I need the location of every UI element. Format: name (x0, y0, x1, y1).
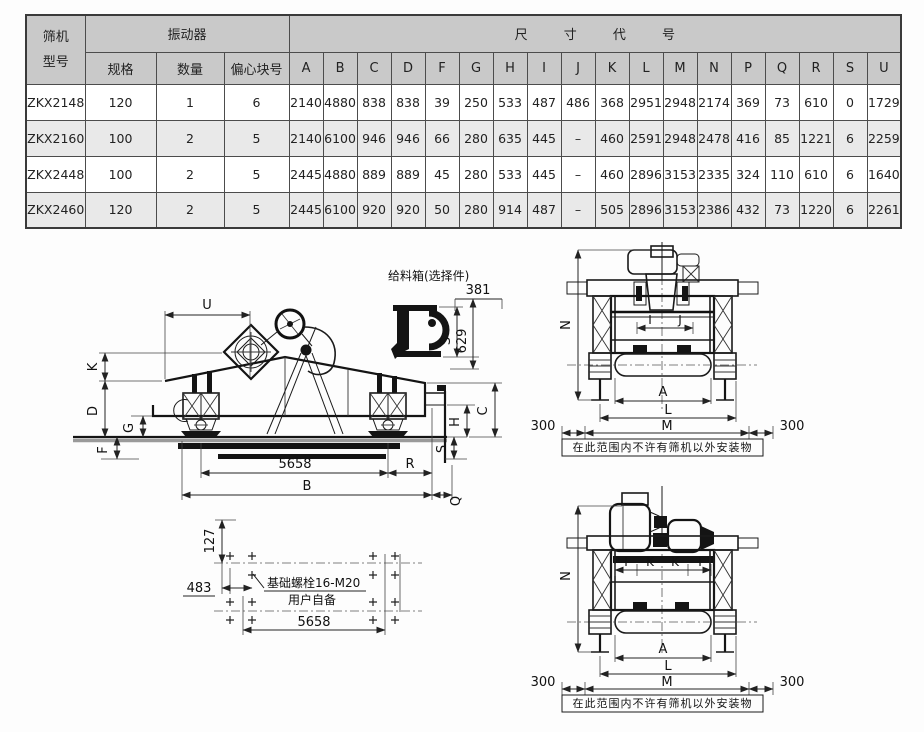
cell-dim: 2445 (289, 156, 323, 192)
cell-dim: 4880 (323, 156, 357, 192)
front-view-bottom-drawing: I K K I N A L 300 M 300 在此范围内不许有筛机以外安装物 (505, 478, 920, 732)
dim-label-d: D (86, 406, 101, 416)
dim-label-u: U (202, 298, 212, 313)
cell-dim: 280 (459, 120, 493, 156)
cell-dim: 85 (765, 120, 799, 156)
cell-block: 5 (224, 192, 289, 228)
dim-label-l: L (664, 403, 672, 418)
cell-dim: 838 (391, 84, 425, 120)
dim-letter: L (629, 52, 663, 84)
dim-label-i: I (648, 313, 652, 327)
front-view-bottom-machine (567, 486, 758, 656)
cell-dim: – (561, 192, 595, 228)
cell-dim: 487 (527, 84, 561, 120)
table-row: ZKX2160 100 2 5 2140 6100 946 946 66 280… (26, 120, 901, 156)
dim-label-5658: 5658 (278, 457, 311, 472)
cell-dim: 6100 (323, 120, 357, 156)
cell-dim: 3153 (663, 156, 697, 192)
dim-label-f: F (96, 446, 111, 453)
model-header-line2: 型号 (27, 50, 85, 75)
dim-letter: F (425, 52, 459, 84)
cell-dim: 2140 (289, 120, 323, 156)
dim-letter: J (561, 52, 595, 84)
dim-label-300-left: 300 (531, 419, 556, 434)
cell-spec: 100 (85, 120, 156, 156)
dim-letter: G (459, 52, 493, 84)
cell-dim: 2140 (289, 84, 323, 120)
table-row: ZKX2148 120 1 6 2140 4880 838 838 39 250… (26, 84, 901, 120)
cell-dim: 416 (731, 120, 765, 156)
cell-dim: 445 (527, 120, 561, 156)
cell-dim: 920 (391, 192, 425, 228)
cell-dim: 369 (731, 84, 765, 120)
dim-label-k: K (86, 362, 101, 371)
dim-label-b: B (303, 479, 312, 494)
cell-qty: 2 (156, 120, 224, 156)
table-row: ZKX2448 100 2 5 2445 4880 889 889 45 280… (26, 156, 901, 192)
dim-letter: B (323, 52, 357, 84)
cell-dim: 2261 (867, 192, 901, 228)
feed-box-width-label: 381 (466, 283, 491, 298)
cell-dim: 533 (493, 156, 527, 192)
dim-label-g: G (122, 423, 137, 433)
dim-label-i-right: I (698, 555, 702, 569)
cell-dim: 73 (765, 84, 799, 120)
cell-dim: 368 (595, 84, 629, 120)
table-row: ZKX2460 120 2 5 2445 6100 920 920 50 280… (26, 192, 901, 228)
feed-box-detail: 给料箱(选择件) 381 S 629 (388, 268, 502, 369)
dim-label-i-left: I (624, 555, 628, 569)
cell-dim: 4880 (323, 84, 357, 120)
dim-label-5658: 5658 (297, 615, 330, 630)
dim-label-c: C (476, 406, 491, 415)
dim-label-300-left: 300 (531, 675, 556, 690)
cell-dim: 66 (425, 120, 459, 156)
dim-letter: U (867, 52, 901, 84)
dim-label-a: A (659, 385, 668, 400)
dim-label-300-right: 300 (780, 419, 805, 434)
cell-spec: 120 (85, 192, 156, 228)
cell-dim: 505 (595, 192, 629, 228)
dim-letter: P (731, 52, 765, 84)
cell-dim: 280 (459, 156, 493, 192)
cell-dim: 610 (799, 156, 833, 192)
side-view-machine (73, 310, 447, 463)
cell-dim: 250 (459, 84, 493, 120)
cell-dim: 2951 (629, 84, 663, 120)
dim-letter: R (799, 52, 833, 84)
dim-label-l: L (664, 659, 672, 674)
cell-dim: 889 (357, 156, 391, 192)
dim-label-h: H (448, 417, 463, 427)
cell-dim: 914 (493, 192, 527, 228)
sub-header-qty: 数量 (156, 52, 224, 84)
spec-table: 筛机 型号 振动器 尺 寸 代 号 规格 数量 偏心块号 A B C D F G… (25, 14, 902, 229)
cell-qty: 1 (156, 84, 224, 120)
cell-dim: 6100 (323, 192, 357, 228)
cell-dim: – (561, 120, 595, 156)
cell-model: ZKX2160 (26, 120, 85, 156)
dim-label-a: A (659, 642, 668, 657)
foundation-plan-drawing: 127 483 基础螺栓16-M20 用户自备 5658 (168, 498, 480, 648)
cell-model: ZKX2460 (26, 192, 85, 228)
cell-dim: 460 (595, 120, 629, 156)
model-header-line1: 筛机 (27, 25, 85, 50)
cell-dim: 445 (527, 156, 561, 192)
dim-letter: M (663, 52, 697, 84)
cell-dim: 487 (527, 192, 561, 228)
feed-box-s-label: S (439, 337, 454, 345)
cell-dim: 0 (833, 84, 867, 120)
cell-dim: 1221 (799, 120, 833, 156)
cell-dim: 2948 (663, 84, 697, 120)
cell-dim: 486 (561, 84, 595, 120)
foundation-plan-dimensions: 127 483 基础螺栓16-M20 用户自备 5658 (183, 520, 385, 635)
cell-dim: 110 (765, 156, 799, 192)
cell-dim: 432 (731, 192, 765, 228)
cell-dim: 1729 (867, 84, 901, 120)
dim-letter: H (493, 52, 527, 84)
cell-dim: 460 (595, 156, 629, 192)
cell-dim: 2445 (289, 192, 323, 228)
cell-dim: 45 (425, 156, 459, 192)
cell-dim: 610 (799, 84, 833, 120)
dim-label-m: M (661, 675, 672, 690)
cell-spec: 120 (85, 84, 156, 120)
cell-model: ZKX2148 (26, 84, 85, 120)
front-view-top-drawing: I J N A L 300 M 300 在此范围内不许有筛机以外安装物 (505, 240, 920, 476)
cell-dim: 280 (459, 192, 493, 228)
dim-label-s: S (435, 445, 450, 453)
bolt-note-line1: 基础螺栓16-M20 (267, 575, 360, 590)
cell-dim: 1640 (867, 156, 901, 192)
cell-model: ZKX2448 (26, 156, 85, 192)
cell-dim: 946 (391, 120, 425, 156)
cell-dim: 2948 (663, 120, 697, 156)
cell-dim: 50 (425, 192, 459, 228)
dim-label-483: 483 (187, 581, 212, 596)
dim-letter: N (697, 52, 731, 84)
cell-dim: 946 (357, 120, 391, 156)
cell-dim: 533 (493, 84, 527, 120)
cell-dim: 2478 (697, 120, 731, 156)
cell-dim: 6 (833, 120, 867, 156)
sub-header-block: 偏心块号 (224, 52, 289, 84)
bolt-note-line2: 用户自备 (288, 592, 336, 607)
cell-dim: 635 (493, 120, 527, 156)
clearance-note: 在此范围内不许有筛机以外安装物 (573, 440, 753, 454)
dim-label-j: J (677, 313, 682, 327)
vibrator-header-cell: 振动器 (85, 15, 289, 52)
dim-letter: K (595, 52, 629, 84)
cell-dim: 920 (357, 192, 391, 228)
dim-label-300-right: 300 (780, 675, 805, 690)
cell-dim: 2174 (697, 84, 731, 120)
dim-label-k-left: K (646, 555, 655, 569)
dim-letter: D (391, 52, 425, 84)
cell-dim: 2591 (629, 120, 663, 156)
cell-dim: 2335 (697, 156, 731, 192)
cell-dim: 73 (765, 192, 799, 228)
dim-letter: S (833, 52, 867, 84)
cell-dim: 6 (833, 156, 867, 192)
cell-block: 6 (224, 84, 289, 120)
side-view-drawing: U K D G F 5658 R B Q S H C (55, 253, 505, 515)
cell-dim: 889 (391, 156, 425, 192)
cell-dim: – (561, 156, 595, 192)
dim-label-127: 127 (203, 529, 218, 554)
model-header-cell: 筛机 型号 (26, 15, 85, 84)
dim-label-m: M (661, 419, 672, 434)
cell-spec: 100 (85, 156, 156, 192)
dim-label-n: N (559, 320, 574, 330)
cell-dim: 2259 (867, 120, 901, 156)
clearance-note: 在此范围内不许有筛机以外安装物 (573, 696, 753, 710)
cell-dim: 2386 (697, 192, 731, 228)
dim-letter: Q (765, 52, 799, 84)
cell-dim: 6 (833, 192, 867, 228)
dims-header-cell: 尺 寸 代 号 (289, 15, 901, 52)
cell-qty: 2 (156, 192, 224, 228)
dim-label-k-right: K (671, 555, 680, 569)
cell-dim: 324 (731, 156, 765, 192)
cell-dim: 838 (357, 84, 391, 120)
sub-header-spec: 规格 (85, 52, 156, 84)
cell-dim: 2896 (629, 192, 663, 228)
cell-qty: 2 (156, 156, 224, 192)
cell-dim: 3153 (663, 192, 697, 228)
cell-dim: 1220 (799, 192, 833, 228)
dim-letter: I (527, 52, 561, 84)
dim-letter: A (289, 52, 323, 84)
dim-label-n: N (559, 571, 574, 581)
dim-label-r: R (405, 457, 414, 472)
cell-dim: 39 (425, 84, 459, 120)
cell-block: 5 (224, 120, 289, 156)
cell-dim: 2896 (629, 156, 663, 192)
cell-block: 5 (224, 156, 289, 192)
feed-box-height-label: 629 (455, 329, 470, 354)
feed-box-title: 给料箱(选择件) (388, 268, 469, 283)
dim-letter: C (357, 52, 391, 84)
